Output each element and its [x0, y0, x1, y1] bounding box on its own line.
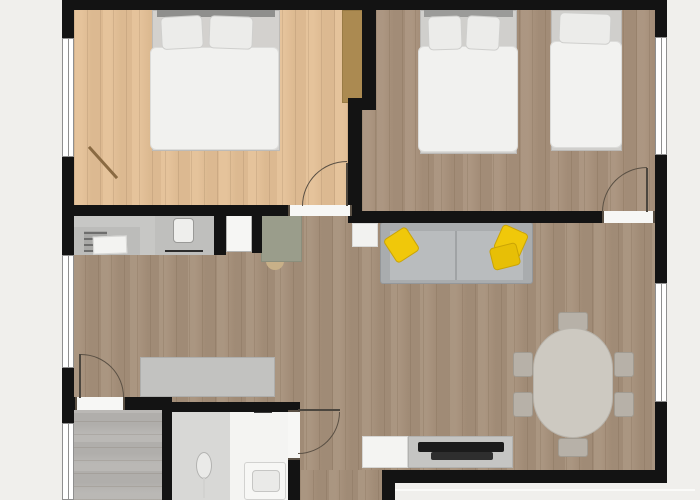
threshold-bedroom1-door [288, 205, 352, 216]
double-bed-2-pillow-left [427, 15, 462, 50]
double-bed-1-pillow-left [160, 15, 204, 50]
dining-chair-bottom [558, 438, 588, 457]
floor-bedroom-2-strip [362, 110, 376, 213]
shower-hose [203, 477, 205, 498]
wall-left-upper [62, 10, 74, 38]
window-living-left-pane-line [68, 256, 69, 367]
threshold-bedroom2-door [602, 211, 655, 223]
kitchen-oven-handle [165, 250, 203, 252]
kitchen-towel [93, 235, 128, 254]
window-dining [655, 283, 667, 402]
wall-right-upper [655, 10, 667, 37]
kitchen-tall-unit [226, 215, 252, 252]
wall-bottom [382, 470, 660, 483]
window-bedroom1 [62, 38, 74, 157]
threshold-bedroom2-door-jamb [602, 211, 604, 223]
window-entry-room-pane-line [68, 424, 69, 499]
wall-kitchen-stub-right [252, 213, 262, 253]
dining-chair-right-2 [614, 392, 634, 417]
double-bed-1-duvet [150, 47, 279, 150]
terrace-edge [395, 489, 695, 491]
wall-between-bedrooms [362, 0, 376, 110]
wall-kitchen-stub-left [214, 213, 226, 255]
bath-basin [252, 470, 280, 492]
window-dining-pane-line [661, 284, 662, 401]
window-living-left [62, 255, 74, 368]
threshold-entry-door [75, 397, 125, 410]
dining-chair-left-1 [513, 352, 533, 377]
window-entry-room [62, 423, 74, 500]
wall-entry-bathroom [162, 410, 172, 500]
sofa-seat-divider [455, 231, 457, 280]
wall-bathroom-right-lower [288, 458, 300, 500]
floor-plan-canvas [0, 0, 700, 500]
single-bed-pillow [558, 12, 611, 45]
threshold-bathroom-door-jamb [288, 458, 300, 460]
floor-entry-room [72, 410, 162, 500]
threshold-bedroom1-door-jamb [288, 205, 290, 216]
wall-bathroom-top [162, 402, 300, 412]
double-bed-1-pillow-right [208, 15, 253, 50]
shower-head [196, 452, 212, 479]
threshold-bedroom1-door-jamb [350, 205, 352, 216]
side-table [352, 223, 378, 247]
window-bedroom2 [655, 37, 667, 155]
wall-bedroom2-bottom [348, 211, 602, 223]
tv-screen [418, 442, 504, 452]
threshold-entry-door-jamb [123, 397, 125, 410]
dining-table [533, 328, 613, 438]
wall-left-lower [62, 368, 74, 423]
double-bed-2-duvet [418, 46, 518, 152]
window-bedroom1-pane-line [68, 39, 69, 156]
double-bed-2-pillow-right [465, 15, 501, 51]
kitchen-sink [173, 218, 194, 243]
single-bed-duvet [550, 41, 622, 148]
dining-chair-left-2 [513, 392, 533, 417]
floor-hallway-strip [300, 470, 382, 500]
dining-chair-right-1 [614, 352, 634, 377]
threshold-bedroom2-door-jamb [653, 211, 655, 223]
threshold-entry-door-jamb [75, 397, 77, 410]
desk [261, 215, 302, 262]
sideboard [140, 357, 275, 397]
wall-bottom-stub [382, 483, 395, 500]
wall-right-mid [655, 155, 667, 283]
tv-stand-left [362, 436, 408, 468]
window-bedroom2-pane-line [661, 38, 662, 154]
wardrobe [342, 10, 364, 103]
tv-base [431, 452, 493, 460]
door-bathroom-leaf [298, 409, 340, 411]
wall-entry-left [62, 397, 75, 410]
